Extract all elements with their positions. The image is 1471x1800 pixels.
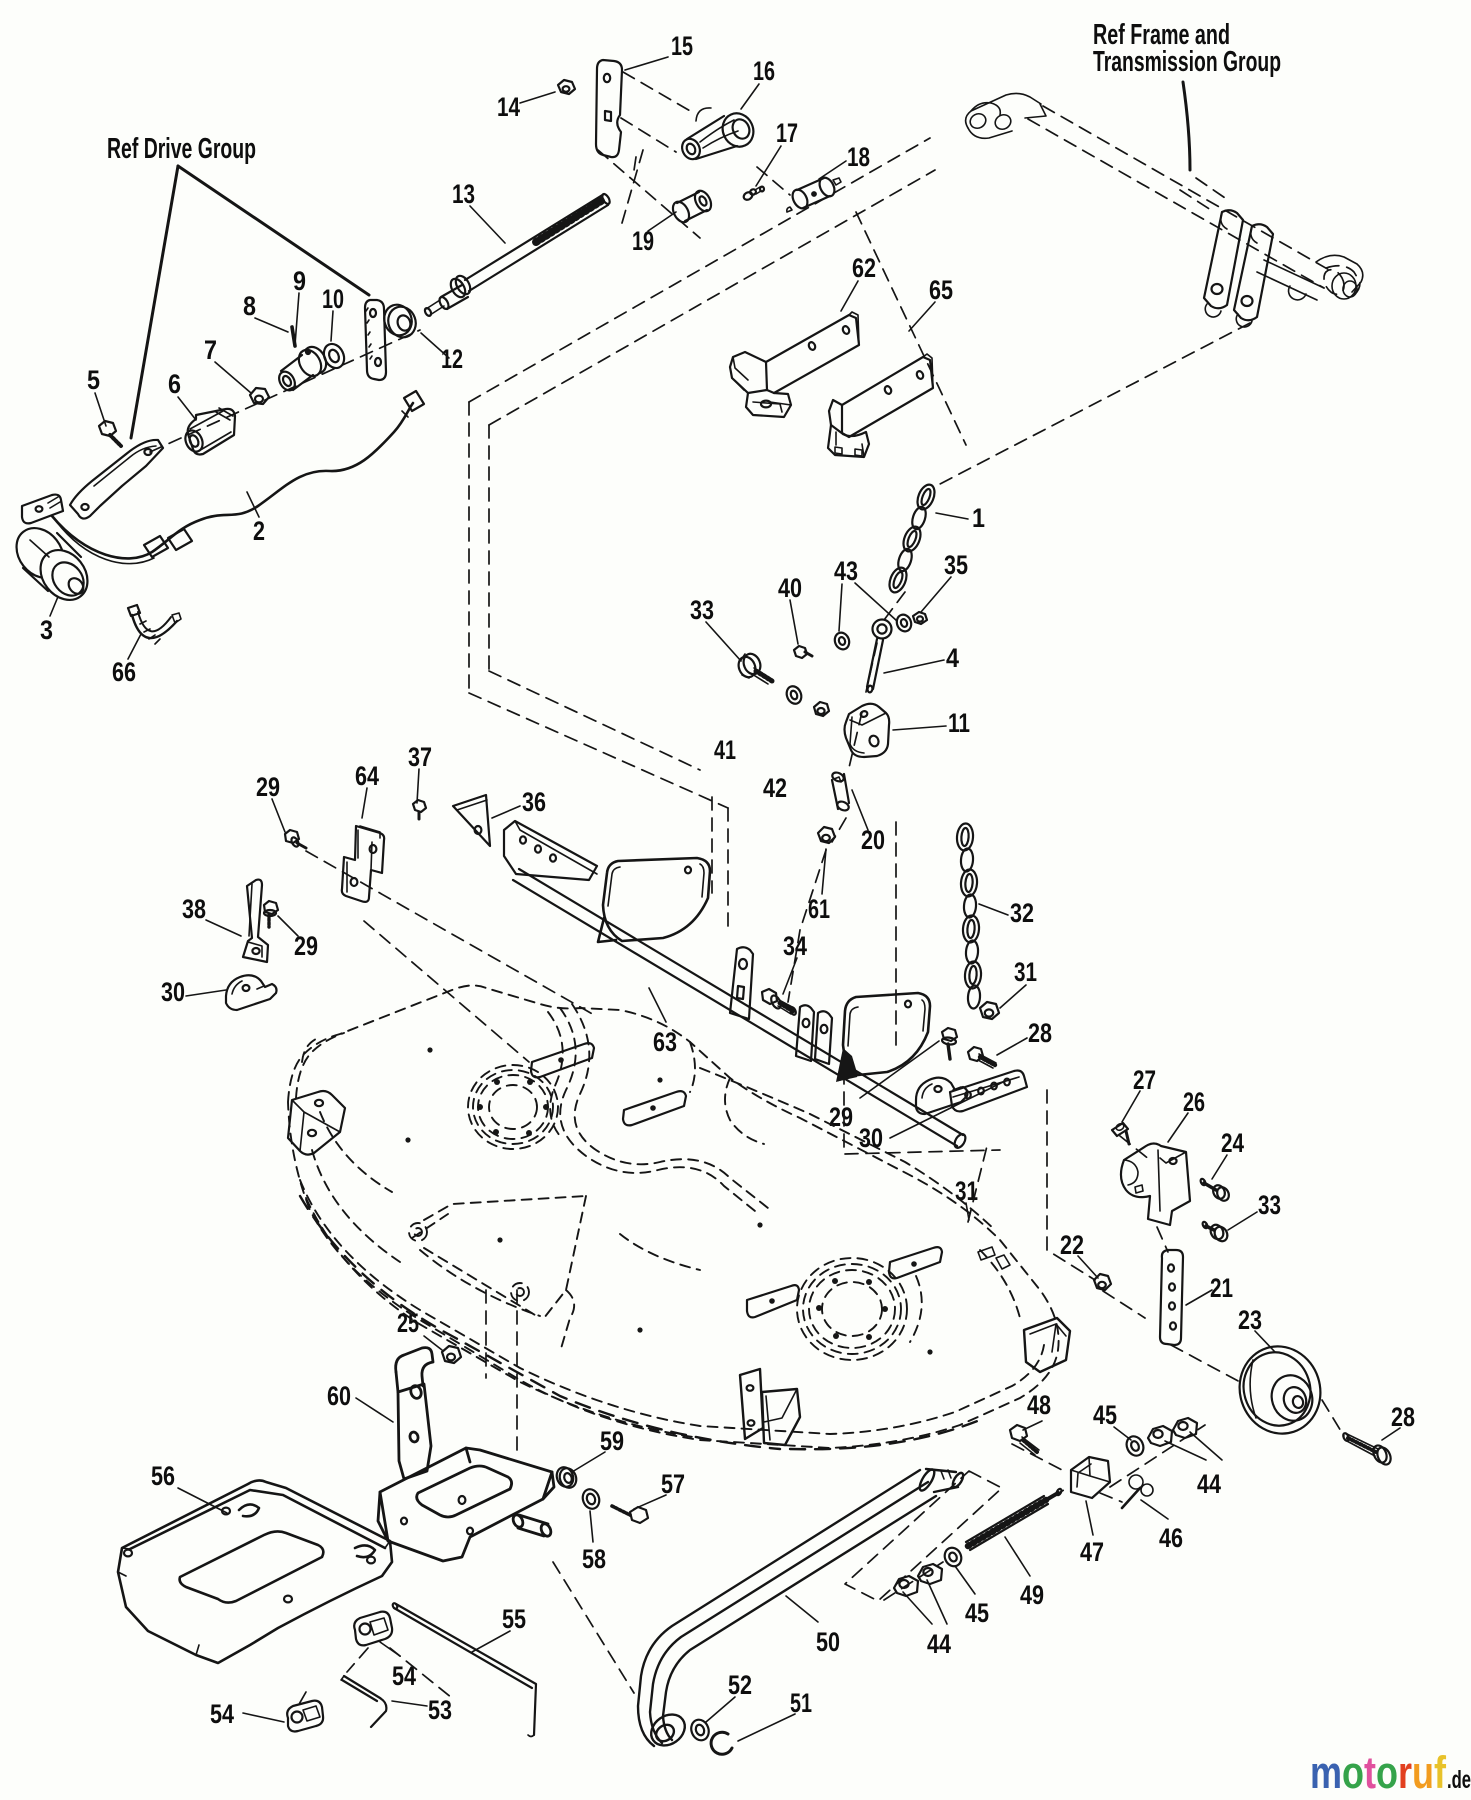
svg-text:56: 56 (151, 1461, 175, 1491)
svg-text:10: 10 (322, 284, 344, 314)
svg-text:20: 20 (861, 825, 885, 855)
svg-text:24: 24 (1221, 1128, 1244, 1158)
svg-text:52: 52 (728, 1670, 752, 1700)
svg-text:41: 41 (714, 735, 736, 765)
svg-text:48: 48 (1027, 1390, 1051, 1420)
svg-text:11: 11 (948, 708, 970, 738)
svg-text:36: 36 (522, 787, 546, 817)
svg-text:7: 7 (204, 335, 217, 365)
svg-text:33: 33 (1258, 1190, 1281, 1220)
svg-text:59: 59 (600, 1426, 624, 1456)
svg-text:2: 2 (253, 516, 265, 546)
svg-text:51: 51 (790, 1688, 812, 1718)
svg-text:6: 6 (168, 369, 181, 399)
svg-text:15: 15 (671, 31, 693, 61)
svg-text:53: 53 (428, 1695, 452, 1725)
svg-text:33: 33 (690, 595, 714, 625)
svg-text:47: 47 (1080, 1537, 1104, 1567)
svg-text:31: 31 (955, 1176, 978, 1206)
svg-text:64: 64 (355, 761, 379, 791)
svg-text:30: 30 (161, 977, 185, 1007)
svg-text:32: 32 (1010, 898, 1034, 928)
svg-text:43: 43 (834, 556, 858, 586)
svg-text:23: 23 (1238, 1305, 1262, 1335)
svg-text:5: 5 (87, 365, 100, 395)
svg-text:42: 42 (763, 773, 787, 803)
svg-text:9: 9 (293, 266, 306, 296)
svg-text:29: 29 (256, 772, 280, 802)
svg-text:38: 38 (182, 894, 206, 924)
svg-text:.de: .de (1447, 1766, 1471, 1794)
svg-text:54: 54 (210, 1699, 234, 1729)
svg-text:8: 8 (243, 291, 256, 321)
svg-text:46: 46 (1159, 1523, 1183, 1553)
svg-text:58: 58 (582, 1544, 606, 1574)
svg-text:17: 17 (776, 118, 798, 148)
svg-text:65: 65 (929, 275, 953, 305)
svg-text:60: 60 (327, 1381, 351, 1411)
svg-text:27: 27 (1133, 1065, 1156, 1095)
svg-text:19: 19 (632, 226, 654, 256)
svg-text:45: 45 (1093, 1400, 1117, 1430)
svg-text:44: 44 (927, 1629, 951, 1659)
svg-text:29: 29 (829, 1102, 853, 1132)
svg-text:13: 13 (452, 179, 475, 209)
svg-text:16: 16 (753, 56, 775, 86)
svg-text:21: 21 (1210, 1273, 1233, 1303)
svg-text:1: 1 (972, 503, 985, 533)
svg-text:3: 3 (40, 615, 53, 645)
svg-text:28: 28 (1391, 1402, 1415, 1432)
svg-text:55: 55 (502, 1604, 526, 1634)
svg-text:Transmission Group: Transmission Group (1093, 46, 1281, 78)
svg-text:31: 31 (1014, 957, 1037, 987)
svg-text:18: 18 (847, 142, 870, 172)
svg-text:4: 4 (946, 643, 959, 673)
svg-text:motoruf: motoruf (1310, 1747, 1447, 1798)
svg-text:45: 45 (965, 1598, 989, 1628)
svg-text:37: 37 (408, 742, 432, 772)
svg-text:12: 12 (441, 344, 463, 374)
svg-text:35: 35 (944, 550, 968, 580)
svg-text:61: 61 (808, 894, 830, 924)
svg-text:49: 49 (1020, 1580, 1044, 1610)
svg-text:50: 50 (816, 1627, 840, 1657)
svg-text:14: 14 (497, 92, 520, 122)
svg-text:26: 26 (1183, 1087, 1205, 1117)
svg-text:28: 28 (1028, 1018, 1052, 1048)
svg-text:44: 44 (1197, 1469, 1221, 1499)
svg-text:22: 22 (1060, 1230, 1084, 1260)
svg-text:62: 62 (852, 253, 876, 283)
svg-text:Ref Drive Group: Ref Drive Group (107, 133, 256, 165)
svg-text:57: 57 (661, 1469, 685, 1499)
svg-text:40: 40 (778, 573, 802, 603)
svg-text:66: 66 (112, 657, 136, 687)
